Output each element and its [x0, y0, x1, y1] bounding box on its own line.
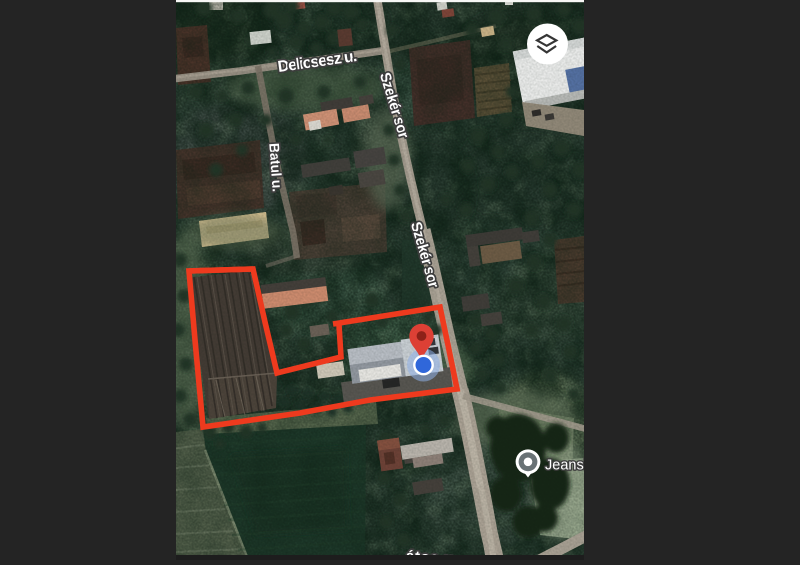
svg-text:Batul u.: Batul u. [266, 142, 285, 192]
svg-text:Jeansb: Jeansb [545, 458, 584, 474]
